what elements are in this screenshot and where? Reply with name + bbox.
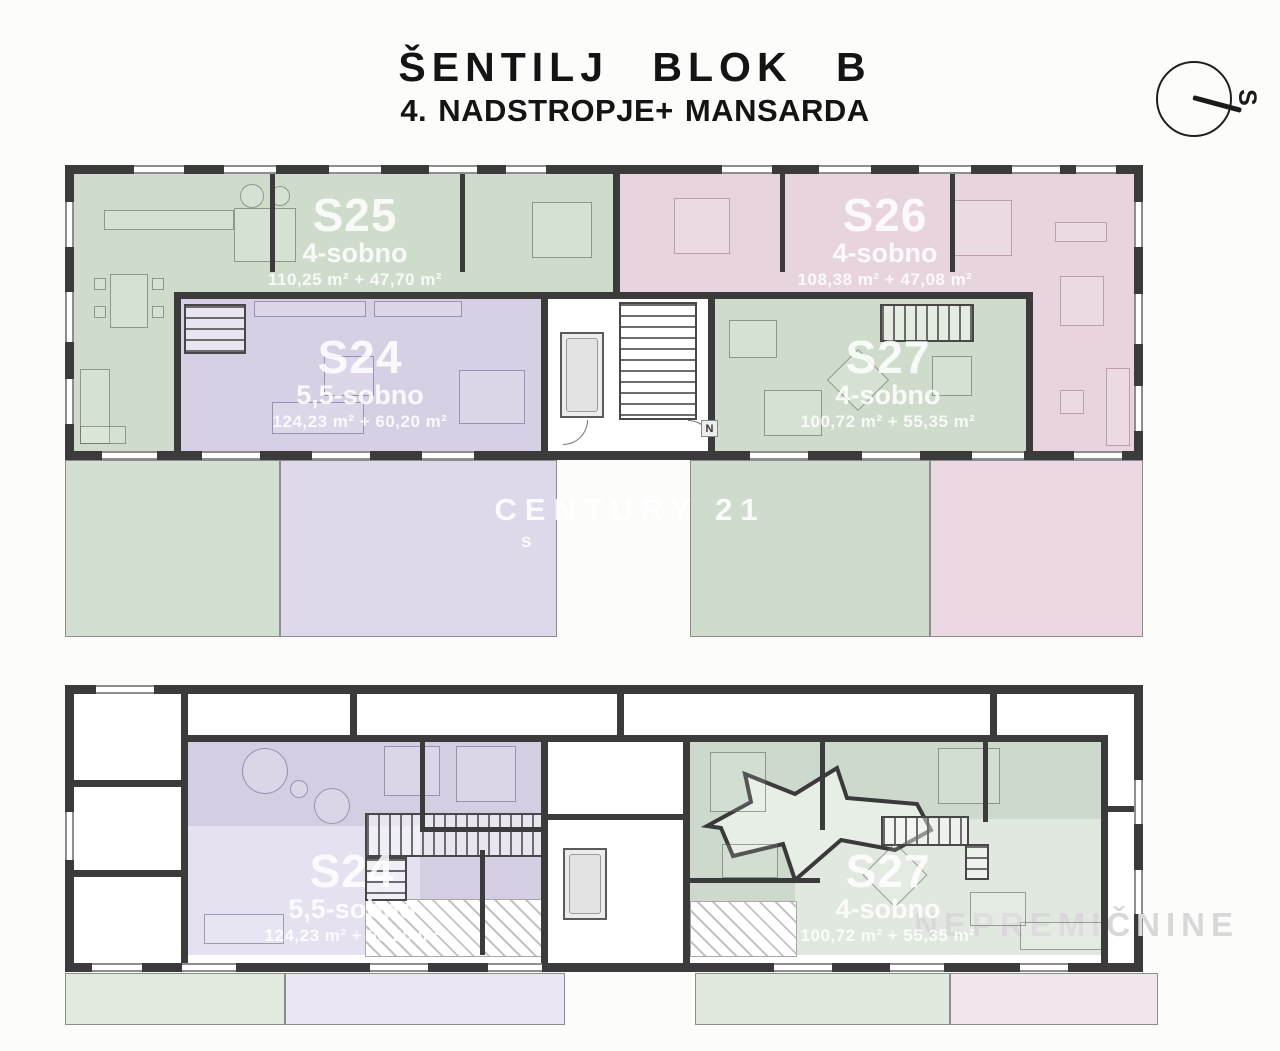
furniture-outline xyxy=(459,370,525,424)
window-opening xyxy=(774,963,832,972)
staircase xyxy=(965,844,989,880)
terrace-band-purple xyxy=(285,973,565,1025)
page-title: ŠENTILJ BLOK B 4. NADSTROPJE+ MANSARDA xyxy=(240,46,1030,129)
furniture-outline xyxy=(970,892,1026,926)
furniture-outline xyxy=(324,356,374,396)
interior-wall xyxy=(541,292,548,451)
roof-hatch-area xyxy=(690,901,797,957)
furniture-outline xyxy=(1060,276,1104,326)
furniture-outline xyxy=(1020,922,1106,950)
window-opening xyxy=(102,451,157,460)
window-opening xyxy=(1134,870,1143,914)
interior-wall xyxy=(460,174,465,272)
furniture-outline xyxy=(532,202,592,258)
furniture-outline xyxy=(240,184,264,208)
window-opening xyxy=(750,451,808,460)
staircase xyxy=(184,304,246,354)
interior-wall xyxy=(950,174,955,272)
interior-wall xyxy=(420,827,545,832)
plant-circle xyxy=(314,788,350,824)
interior-wall xyxy=(181,735,1108,742)
interior-wall xyxy=(990,694,997,735)
window-opening xyxy=(1134,202,1143,247)
compass-north-label: S xyxy=(1232,89,1261,106)
window-opening xyxy=(312,451,370,460)
window-opening xyxy=(1020,963,1068,972)
window-opening xyxy=(134,165,184,174)
plant-circle xyxy=(242,748,288,794)
door-arc xyxy=(563,420,588,445)
terrace-band-green xyxy=(695,973,950,1025)
window-opening xyxy=(919,165,971,174)
furniture-outline xyxy=(674,198,730,254)
furniture-outline xyxy=(94,278,106,290)
window-opening xyxy=(890,963,944,972)
furniture-outline xyxy=(729,320,777,358)
window-opening xyxy=(65,292,74,342)
window-opening xyxy=(722,165,772,174)
furniture-outline xyxy=(104,210,234,230)
window-opening xyxy=(65,379,74,424)
window-opening xyxy=(329,165,381,174)
furniture-outline xyxy=(80,426,126,444)
interior-wall xyxy=(270,174,275,272)
terrace-band-purple xyxy=(280,460,557,637)
staircase xyxy=(880,304,974,342)
window-opening xyxy=(422,451,474,460)
plant-circle xyxy=(290,780,308,798)
interior-wall xyxy=(1026,292,1033,451)
interior-wall xyxy=(480,850,485,955)
interior-wall xyxy=(420,742,425,832)
staircase xyxy=(619,302,697,420)
interior-wall xyxy=(690,878,820,883)
interior-wall xyxy=(74,780,181,787)
watermark-century21: CENTURY 21 xyxy=(380,492,880,528)
interior-wall xyxy=(178,292,1030,299)
furniture-outline xyxy=(152,278,164,290)
interior-wall xyxy=(780,174,785,272)
window-opening xyxy=(92,963,142,972)
interior-wall xyxy=(74,870,181,877)
furniture-outline xyxy=(234,208,296,262)
furniture-outline xyxy=(932,356,972,396)
terrace-band-pink xyxy=(950,973,1158,1025)
furniture-outline xyxy=(952,200,1012,256)
furniture-outline xyxy=(1055,222,1107,242)
staircase xyxy=(365,813,545,857)
window-opening xyxy=(370,963,428,972)
terrace-band-green xyxy=(65,973,285,1025)
elevator xyxy=(563,848,607,920)
terrace-band-green xyxy=(690,460,930,637)
lower-floor-plan: NEPREMIČNINE S24 xyxy=(65,685,1143,972)
interior-wall xyxy=(1108,806,1134,812)
window-opening xyxy=(65,202,74,247)
window-opening xyxy=(1074,451,1122,460)
interior-wall xyxy=(181,694,188,963)
window-opening xyxy=(488,963,542,972)
architect-logo-n: N xyxy=(701,420,718,437)
interior-wall xyxy=(350,694,357,735)
elevator xyxy=(560,332,604,418)
staircase xyxy=(365,857,407,901)
interior-wall xyxy=(613,174,620,292)
interior-wall xyxy=(683,742,690,963)
furniture-outline xyxy=(272,402,364,434)
terrace-band-pink xyxy=(930,460,1143,637)
window-opening xyxy=(862,451,920,460)
furniture-outline xyxy=(710,752,766,812)
title-line2: 4. NADSTROPJE+ MANSARDA xyxy=(240,93,1030,129)
furniture-outline xyxy=(152,306,164,318)
furniture-outline xyxy=(94,306,106,318)
window-opening xyxy=(972,451,1024,460)
roof-hatch-area xyxy=(365,899,547,957)
compass: S xyxy=(1150,55,1280,145)
window-opening xyxy=(1134,294,1143,344)
window-opening xyxy=(202,451,260,460)
title-line1: ŠENTILJ BLOK B xyxy=(240,46,1030,89)
furniture-outline xyxy=(384,746,440,796)
interior-wall xyxy=(617,694,624,735)
window-opening xyxy=(224,165,276,174)
window-opening xyxy=(506,165,546,174)
window-opening xyxy=(1076,165,1116,174)
upper-floor-plan: N S25 xyxy=(65,165,1143,460)
terrace-band-green xyxy=(65,460,280,637)
interior-wall xyxy=(1101,735,1108,963)
furniture-outline xyxy=(938,748,1000,804)
interior-wall xyxy=(174,292,181,451)
furniture-outline xyxy=(764,390,822,436)
furniture-outline xyxy=(1060,390,1084,414)
interior-wall xyxy=(983,742,988,822)
interior-wall xyxy=(541,742,548,963)
furniture-outline xyxy=(374,301,462,317)
furniture-outline xyxy=(110,274,148,328)
window-opening xyxy=(182,963,236,972)
furniture-outline xyxy=(722,844,778,878)
window-opening xyxy=(1012,165,1060,174)
watermark-century21-sub: s xyxy=(521,531,532,553)
window-opening xyxy=(65,812,74,860)
window-opening xyxy=(1134,780,1143,824)
furniture-outline xyxy=(1106,368,1130,446)
interior-wall xyxy=(548,814,683,820)
window-opening xyxy=(96,685,154,694)
window-opening xyxy=(1134,386,1143,431)
furniture-outline xyxy=(204,914,284,944)
furniture-outline xyxy=(254,301,366,317)
interior-wall xyxy=(820,742,825,830)
furniture-outline xyxy=(456,746,516,802)
window-opening xyxy=(429,165,477,174)
window-opening xyxy=(819,165,871,174)
